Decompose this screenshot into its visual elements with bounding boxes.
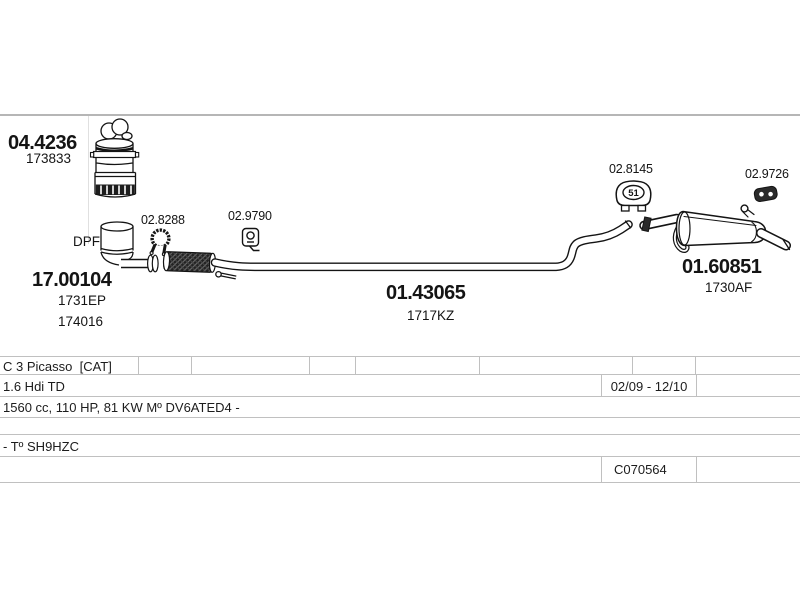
empty-cell bbox=[697, 457, 800, 482]
flex-pipe-drawing bbox=[163, 252, 216, 273]
chassis-code-cell: C070564 bbox=[602, 457, 697, 482]
empty-cell bbox=[0, 457, 602, 482]
oe-ref-dpf-2: 174016 bbox=[58, 315, 103, 329]
vehicle-row-code: C070564 bbox=[0, 457, 800, 483]
vehicle-table: C 3 Picasso [CAT] 1.6 Hdi TD 02/09 - 12/… bbox=[0, 356, 800, 483]
vehicle-row-engine: 1.6 Hdi TD 02/09 - 12/10 bbox=[0, 375, 800, 397]
dpf-tag-label: DPF bbox=[73, 235, 100, 249]
part-number-muffler: 01.60851 bbox=[682, 257, 761, 277]
type-code-cell: - Tº SH9HZC bbox=[0, 435, 800, 456]
hanger-size-label: 51 bbox=[628, 188, 639, 199]
empty-cell bbox=[356, 357, 480, 374]
empty-cell bbox=[139, 357, 192, 374]
part-number-clamp: 02.8288 bbox=[141, 214, 185, 227]
pipe-stub-drawing bbox=[216, 272, 236, 278]
model-cell: C 3 Picasso [CAT] bbox=[0, 357, 139, 374]
rubber-hanger-icon: 51 bbox=[616, 181, 651, 211]
oe-ref-catalyst: 173833 bbox=[26, 152, 71, 166]
oe-ref-muffler: 1730AF bbox=[705, 281, 752, 295]
vehicle-row-model: C 3 Picasso [CAT] bbox=[0, 357, 800, 375]
engine-cell: 1.6 Hdi TD bbox=[0, 375, 602, 396]
rear-muffler-drawing bbox=[642, 205, 790, 251]
part-number-catalyst: 04.4236 bbox=[8, 133, 77, 153]
centre-pipe-drawing bbox=[215, 221, 631, 267]
empty-cell bbox=[310, 357, 356, 374]
front-catalyst-drawing bbox=[91, 119, 139, 197]
part-number-pipe: 01.43065 bbox=[386, 283, 465, 303]
empty-cell bbox=[192, 357, 310, 374]
specs-cell: 1560 cc, 110 HP, 81 KW Mº DV6ATED4 - bbox=[0, 397, 800, 417]
part-number-mount: 02.9726 bbox=[745, 168, 789, 181]
oe-ref-dpf-1: 1731EP bbox=[58, 294, 106, 308]
empty-cell bbox=[696, 357, 800, 374]
part-number-bracket: 02.9790 bbox=[228, 210, 272, 223]
empty-cell bbox=[480, 357, 633, 374]
empty-cell bbox=[633, 357, 696, 374]
part-number-hanger: 02.8145 bbox=[609, 163, 653, 176]
empty-cell bbox=[0, 418, 800, 434]
vehicle-row-spacer bbox=[0, 418, 800, 435]
vehicle-row-type: - Tº SH9HZC bbox=[0, 435, 800, 457]
years-cell: 02/09 - 12/10 bbox=[602, 375, 697, 396]
rubber-mount-icon bbox=[754, 186, 778, 203]
oe-ref-pipe: 1717KZ bbox=[407, 309, 454, 323]
dpf-drawing bbox=[101, 222, 158, 272]
empty-cell bbox=[697, 375, 800, 396]
vehicle-row-specs: 1560 cc, 110 HP, 81 KW Mº DV6ATED4 - bbox=[0, 397, 800, 418]
hanger-bracket-icon bbox=[243, 229, 260, 251]
part-number-dpf: 17.00104 bbox=[32, 270, 111, 290]
